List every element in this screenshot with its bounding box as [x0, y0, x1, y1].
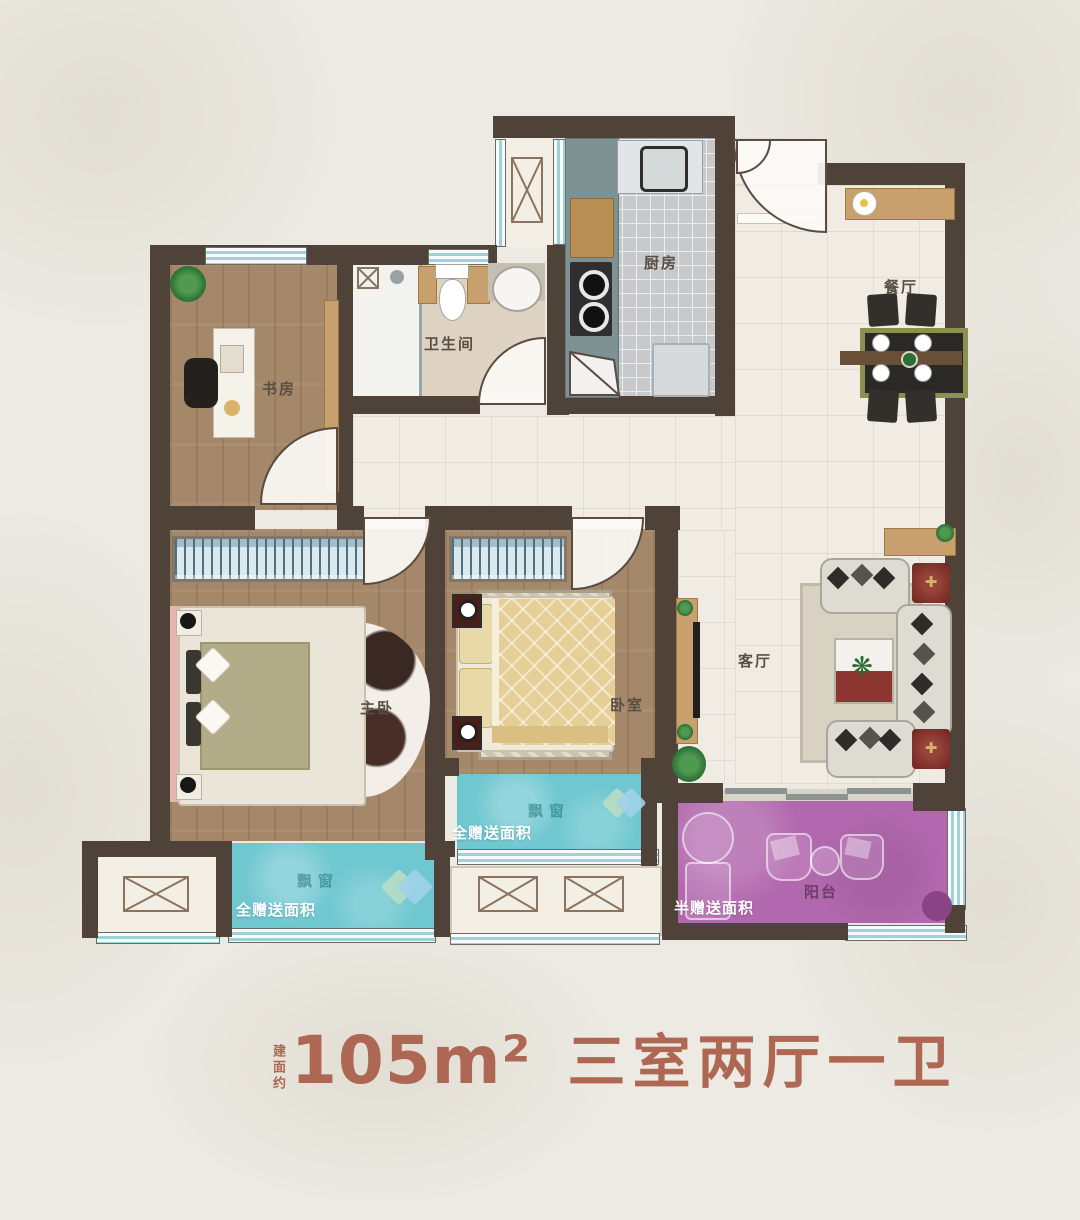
caption-area: 105m²	[291, 1028, 531, 1094]
gift-label-balcony: 半赠送面积	[674, 897, 754, 918]
room-label-dining: 餐厅	[884, 276, 918, 297]
bathroom-door-arc	[479, 338, 545, 404]
room-label-kitchen: 厨房	[644, 252, 678, 273]
caption-layout: 三室两厅一卫	[567, 1033, 957, 1091]
gift-label-master-bay: 全赠送面积	[236, 899, 316, 920]
room-label-balcony: 阳台	[804, 881, 838, 902]
room-label-bedroom: 卧室	[610, 694, 644, 715]
room-label-living: 客厅	[738, 650, 772, 671]
study-door-arc	[261, 428, 337, 504]
master-door-arc	[364, 518, 430, 584]
gift-label-bedroom-bay: 全赠送面积	[452, 822, 532, 843]
room-label-bathroom: 卫生间	[424, 333, 475, 354]
floor-plan-page: ❋ ✚ ✚	[0, 0, 1080, 1164]
caption-prefix: 建面约	[268, 1044, 287, 1092]
bay-window-label-bedroom: 飘窗	[528, 800, 570, 821]
bedroom-door-arc	[572, 518, 643, 589]
door-swings-and-symbols	[0, 0, 1080, 1164]
caption: 建面约 105m² 三室两厅一卫	[268, 1028, 995, 1094]
room-label-master-bedroom: 主卧	[360, 697, 394, 718]
room-label-study: 书房	[262, 378, 296, 399]
bay-window-label-master: 飘窗	[297, 870, 339, 891]
